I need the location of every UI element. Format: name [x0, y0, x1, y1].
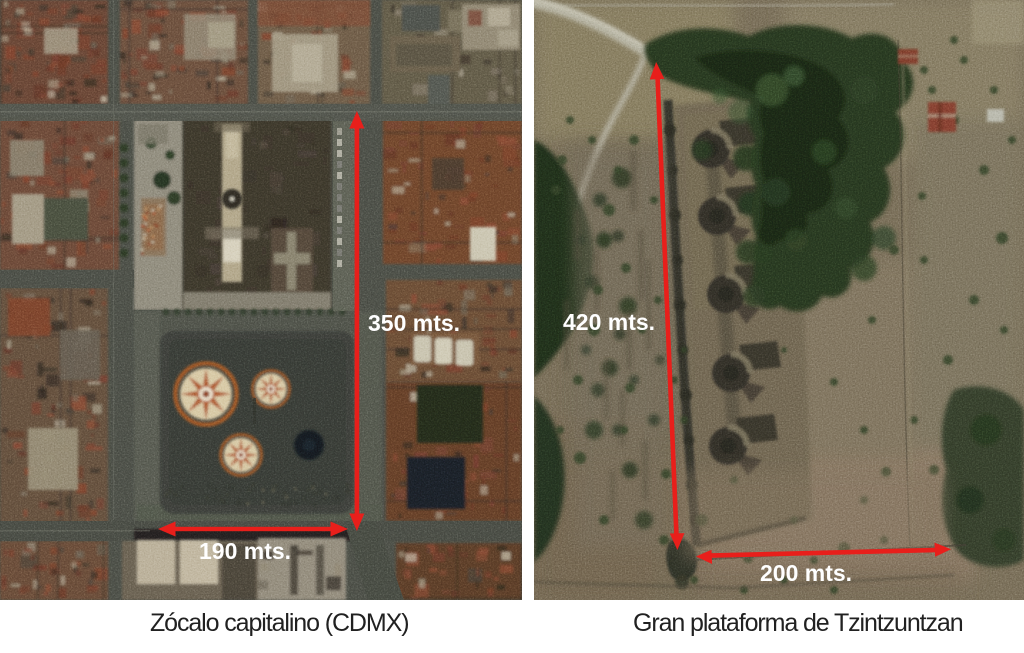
svg-text:420 mts.: 420 mts. — [563, 309, 655, 335]
svg-text:350 mts.: 350 mts. — [368, 310, 460, 336]
svg-text:190 mts.: 190 mts. — [199, 538, 291, 564]
svg-text:200 mts.: 200 mts. — [760, 560, 852, 586]
